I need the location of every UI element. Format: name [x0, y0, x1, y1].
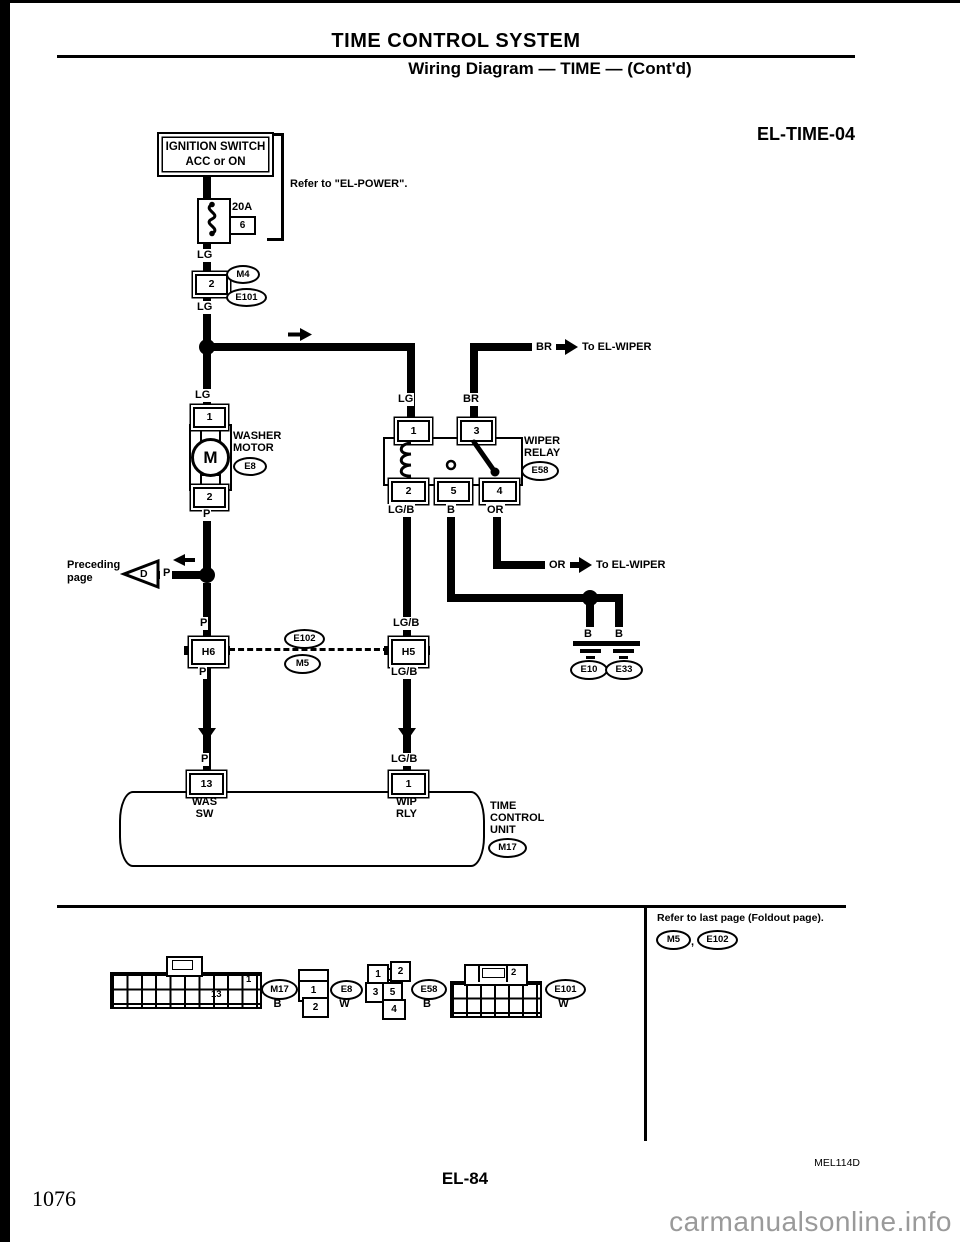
connector-oval-m5-note: M5: [656, 930, 691, 950]
wire-color-label: LG/B: [387, 504, 415, 517]
motor-letter: M: [203, 448, 217, 468]
figure-code: MEL114D: [760, 1158, 860, 1169]
connector-m17-cell-13: 13: [211, 990, 222, 1000]
wire-segment: [615, 594, 623, 627]
tcu-terminal-name: WAS: [189, 797, 220, 808]
bracket-vertical: [281, 133, 284, 241]
wire-color-label: OR: [486, 504, 505, 517]
wire-color-label: B: [446, 504, 456, 517]
connector-color-code: W: [545, 999, 582, 1010]
refer-el-power-note: Refer to "EL-POWER".: [289, 178, 408, 191]
diagram-code: EL-TIME-04: [700, 125, 855, 143]
wire-color-label: P: [202, 508, 211, 521]
connector-oval-m4: M4: [226, 265, 260, 284]
connector-oval-e101: E101: [226, 288, 267, 307]
splice-dot: [199, 339, 215, 355]
wire-color-label: LG/B: [390, 666, 418, 679]
connector-oval-e102: E102: [284, 629, 325, 649]
connector-view-m17: [110, 972, 262, 1009]
direction-arrow-down-icon: [198, 728, 216, 741]
tcu-terminal-name: WIP: [391, 797, 422, 808]
page-subtitle: Wiring Diagram — TIME — (Cont'd): [150, 60, 950, 77]
ground-icon: [580, 649, 601, 653]
watermark: carmanualsonline.info: [560, 1208, 952, 1236]
connector-e58-cell-4: 4: [382, 999, 406, 1020]
tcu-pin-13: 13: [189, 773, 224, 795]
connector-oval-e58: E58: [521, 461, 559, 481]
connector-oval-e8-view: E8: [330, 980, 363, 1000]
wire-segment: [407, 343, 415, 421]
scan-edge-top: [0, 0, 960, 3]
header-rule: [57, 55, 855, 58]
connector-oval-m17: M17: [488, 838, 527, 858]
wiper-relay-pin-4: 4: [482, 481, 517, 502]
connector-color-code: B: [261, 999, 294, 1010]
manual-page-number: EL-84: [380, 1170, 550, 1187]
connector-pin-2: 2: [195, 274, 228, 295]
footer-divider: [644, 905, 647, 1141]
washer-motor-pin-2: 2: [193, 487, 226, 508]
wire-color-label: P: [199, 617, 208, 630]
wire-color-label: B: [614, 628, 624, 641]
preceding-page-text1: Preceding: [67, 560, 120, 571]
connector-m17-tab-slot: [172, 960, 193, 970]
connector-oval-e10: E10: [570, 660, 608, 680]
wire-color-label: LG/B: [392, 617, 420, 630]
connector-oval-e33: E33: [605, 660, 643, 680]
wire-color-label: LG/B: [390, 753, 418, 766]
connector-nub: [184, 646, 189, 655]
wire-segment: [203, 583, 211, 639]
wire-segment: [470, 343, 532, 351]
wiper-relay-pin-5: 5: [437, 481, 470, 502]
wire-color-label: P: [198, 666, 207, 679]
wire-color-label: BR: [535, 341, 553, 354]
connector-e58-cell-2: 2: [390, 961, 411, 982]
connector-oval-e102-note: E102: [697, 930, 738, 950]
wire-color-label: LG: [196, 301, 213, 314]
connector-nub: [384, 646, 389, 655]
scan-edge-left: [0, 0, 10, 1242]
preceding-triangle-letter: D: [140, 569, 148, 580]
wiper-relay-name2: RELAY: [523, 447, 561, 460]
connector-oval-m17-view: M17: [261, 979, 298, 1000]
wire-color-label: P: [162, 567, 171, 580]
wire-segment: [447, 594, 598, 602]
connector-color-code: W: [330, 999, 359, 1010]
ground-icon: [619, 656, 628, 659]
washer-motor-pin-1: 1: [193, 407, 226, 428]
ground-icon: [606, 641, 640, 646]
connector-color-code: B: [411, 999, 443, 1010]
wiper-relay-pin-2: 2: [391, 481, 426, 502]
washer-motor-name2: MOTOR: [232, 442, 275, 455]
book-page-number: 1076: [32, 1188, 112, 1210]
ground-icon: [573, 641, 607, 646]
wire-color-label: LG: [397, 393, 414, 406]
tcu-terminal-name: SW: [189, 809, 220, 820]
connector-e101-cell-2: 2: [511, 968, 516, 978]
ignition-switch-box: IGNITION SWITCH ACC or ON: [157, 132, 274, 177]
ground-icon: [613, 649, 634, 653]
wire-segment: [207, 343, 415, 351]
fuse-rating: 20A: [231, 201, 253, 214]
connector-oval-e101-view: E101: [545, 979, 586, 1000]
ignition-switch-line2: ACC or ON: [185, 155, 245, 170]
connector-oval-m5: M5: [284, 654, 321, 674]
connector-m17-cell-1: 1: [246, 975, 251, 985]
wire-segment: [203, 292, 211, 343]
connector-h5: H5: [391, 639, 426, 665]
to-el-wiper-text: To EL-WIPER: [581, 341, 652, 354]
footer-rule: [57, 905, 846, 908]
tcu-terminal-name: RLY: [391, 809, 422, 820]
tcu-pin-1: 1: [391, 773, 426, 795]
ground-icon: [586, 656, 595, 659]
fuse-number-box: 6: [229, 216, 256, 235]
connector-h6: H6: [191, 639, 226, 665]
fuse-icon: [199, 200, 225, 238]
ignition-switch-line1: IGNITION SWITCH: [166, 140, 266, 155]
preceding-page-text2: page: [67, 573, 93, 584]
to-el-wiper-arrow-icon: [570, 557, 592, 573]
time-control-unit-box: [119, 791, 485, 867]
wire-color-label: LG: [194, 389, 211, 402]
connector-oval-e8: E8: [233, 457, 267, 476]
direction-arrow-left-icon: [173, 554, 195, 566]
connector-view-e101: [450, 981, 542, 1018]
wire-segment: [493, 561, 545, 569]
connector-e101-top-divider: [506, 964, 508, 982]
wire-color-label: OR: [548, 559, 567, 572]
wire-segment: [470, 343, 478, 421]
connector-e101-top-divider: [478, 964, 480, 982]
connector-e101-tab-slot: [482, 968, 505, 978]
foldout-note: Refer to last page (Foldout page).: [656, 912, 825, 925]
wire-color-label: P: [200, 753, 209, 766]
splice-dot: [199, 567, 215, 583]
to-el-wiper-text: To EL-WIPER: [595, 559, 666, 572]
direction-arrow-right-icon: [288, 328, 312, 341]
relay-switch-icon: [383, 437, 519, 482]
section-title: TIME CONTROL SYSTEM: [57, 31, 855, 51]
connector-e8-cell-2: 2: [302, 997, 329, 1018]
direction-arrow-down-icon: [398, 728, 416, 741]
tcu-name3: UNIT: [489, 824, 517, 837]
ground-splice-dot: [582, 590, 598, 606]
to-el-wiper-arrow-icon: [556, 339, 578, 355]
wire-color-label: B: [583, 628, 593, 641]
wire-color-label: BR: [462, 393, 480, 406]
wire-color-label: LG: [196, 249, 213, 262]
connector-oval-e58-view: E58: [411, 979, 447, 1000]
motor-icon: M: [191, 438, 230, 477]
bracket-tick-bottom: [267, 238, 281, 241]
